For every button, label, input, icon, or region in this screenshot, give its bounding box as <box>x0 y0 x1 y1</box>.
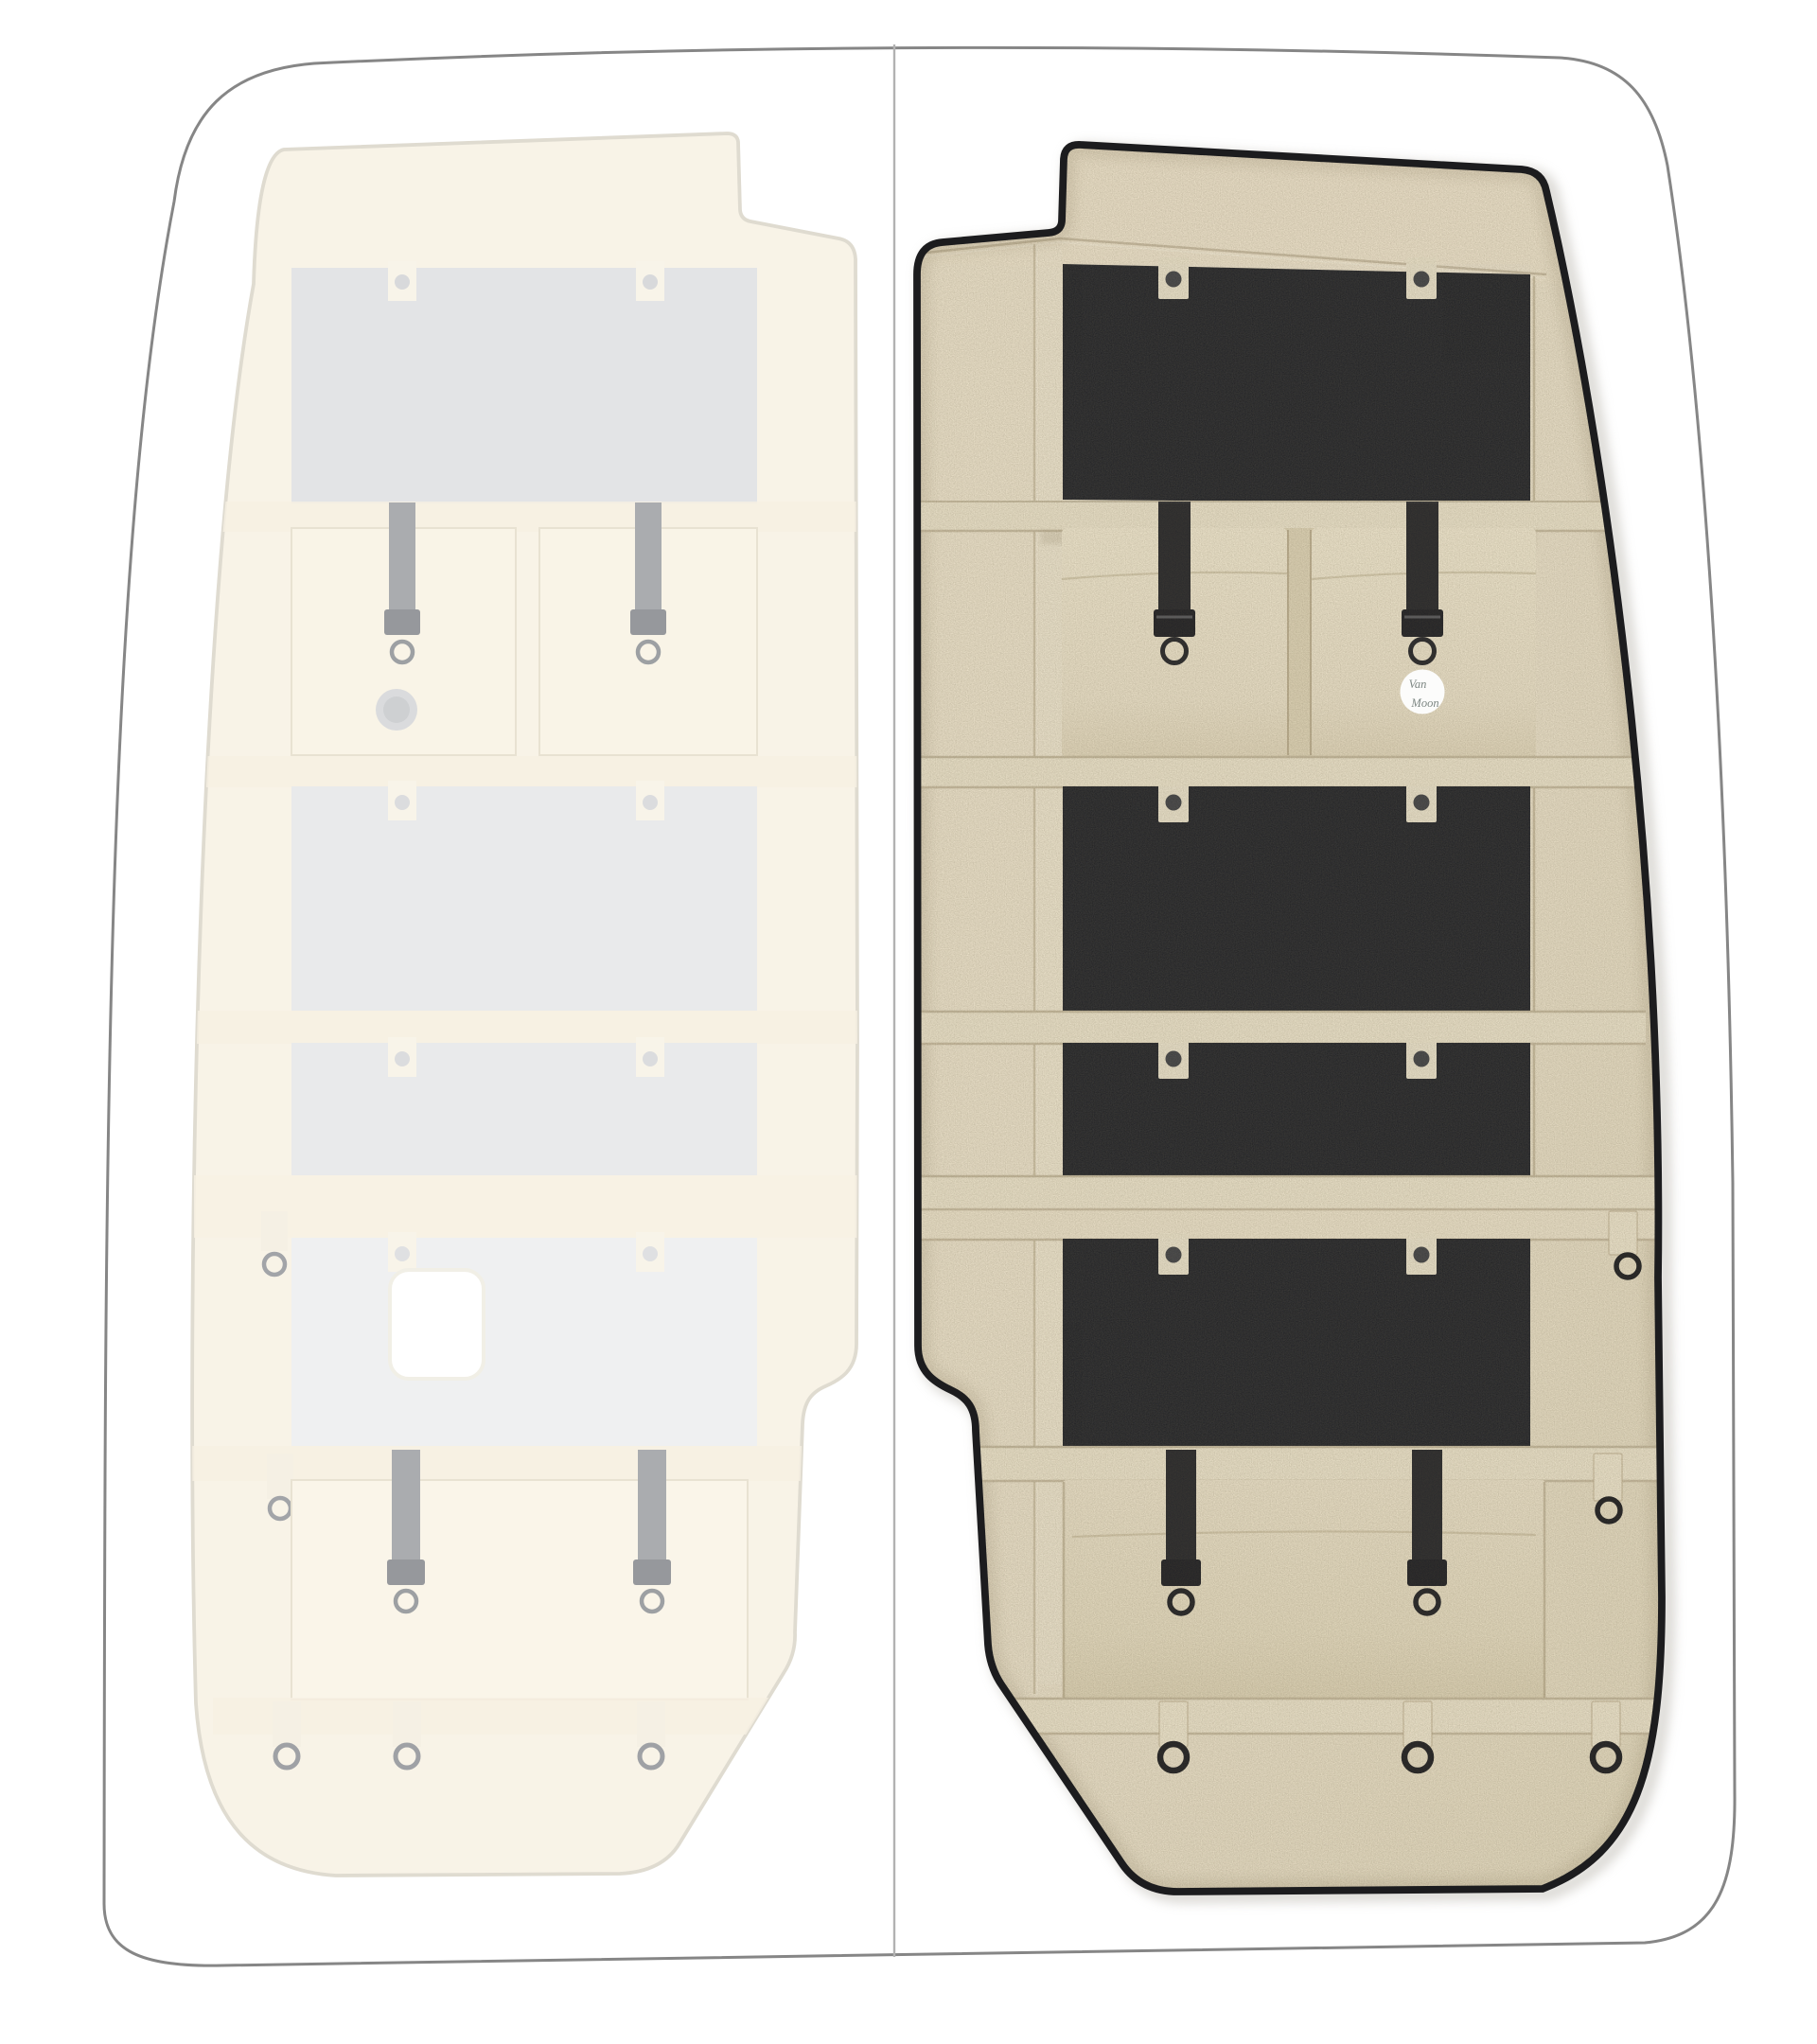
svg-text:Moon: Moon <box>1410 696 1438 710</box>
svg-text:Van: Van <box>1409 678 1427 691</box>
